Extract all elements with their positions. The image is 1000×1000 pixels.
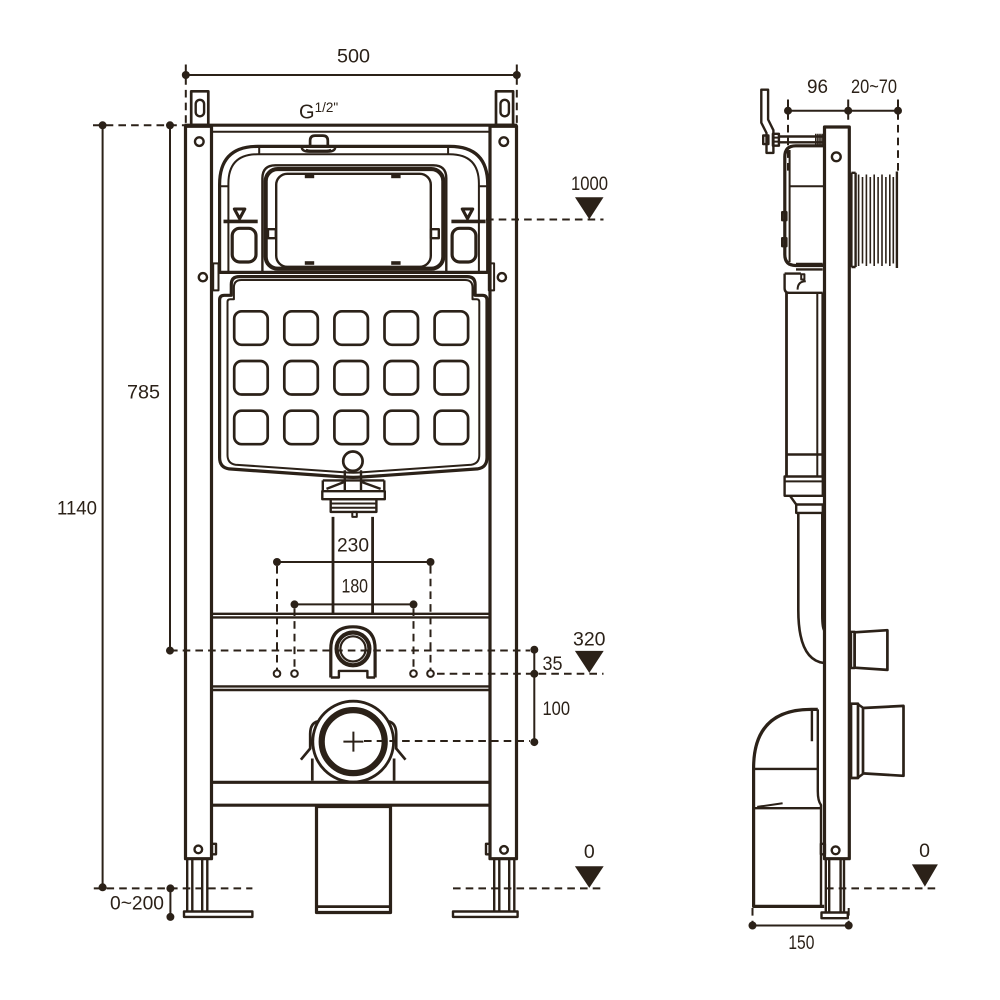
- svg-text:0: 0: [584, 841, 595, 863]
- svg-text:35: 35: [543, 653, 563, 675]
- svg-text:785: 785: [127, 382, 160, 404]
- svg-text:G1/2": G1/2": [299, 100, 338, 124]
- svg-text:0: 0: [919, 840, 930, 862]
- svg-text:100: 100: [543, 698, 571, 720]
- svg-text:20~70: 20~70: [851, 76, 897, 98]
- svg-text:500: 500: [337, 46, 370, 68]
- svg-text:0~200: 0~200: [110, 894, 164, 915]
- svg-text:320: 320: [573, 629, 606, 651]
- svg-text:180: 180: [342, 576, 369, 598]
- svg-text:96: 96: [807, 76, 828, 98]
- svg-text:1140: 1140: [57, 498, 97, 520]
- svg-text:1000: 1000: [571, 173, 608, 195]
- svg-text:150: 150: [788, 932, 814, 954]
- svg-text:230: 230: [337, 535, 369, 557]
